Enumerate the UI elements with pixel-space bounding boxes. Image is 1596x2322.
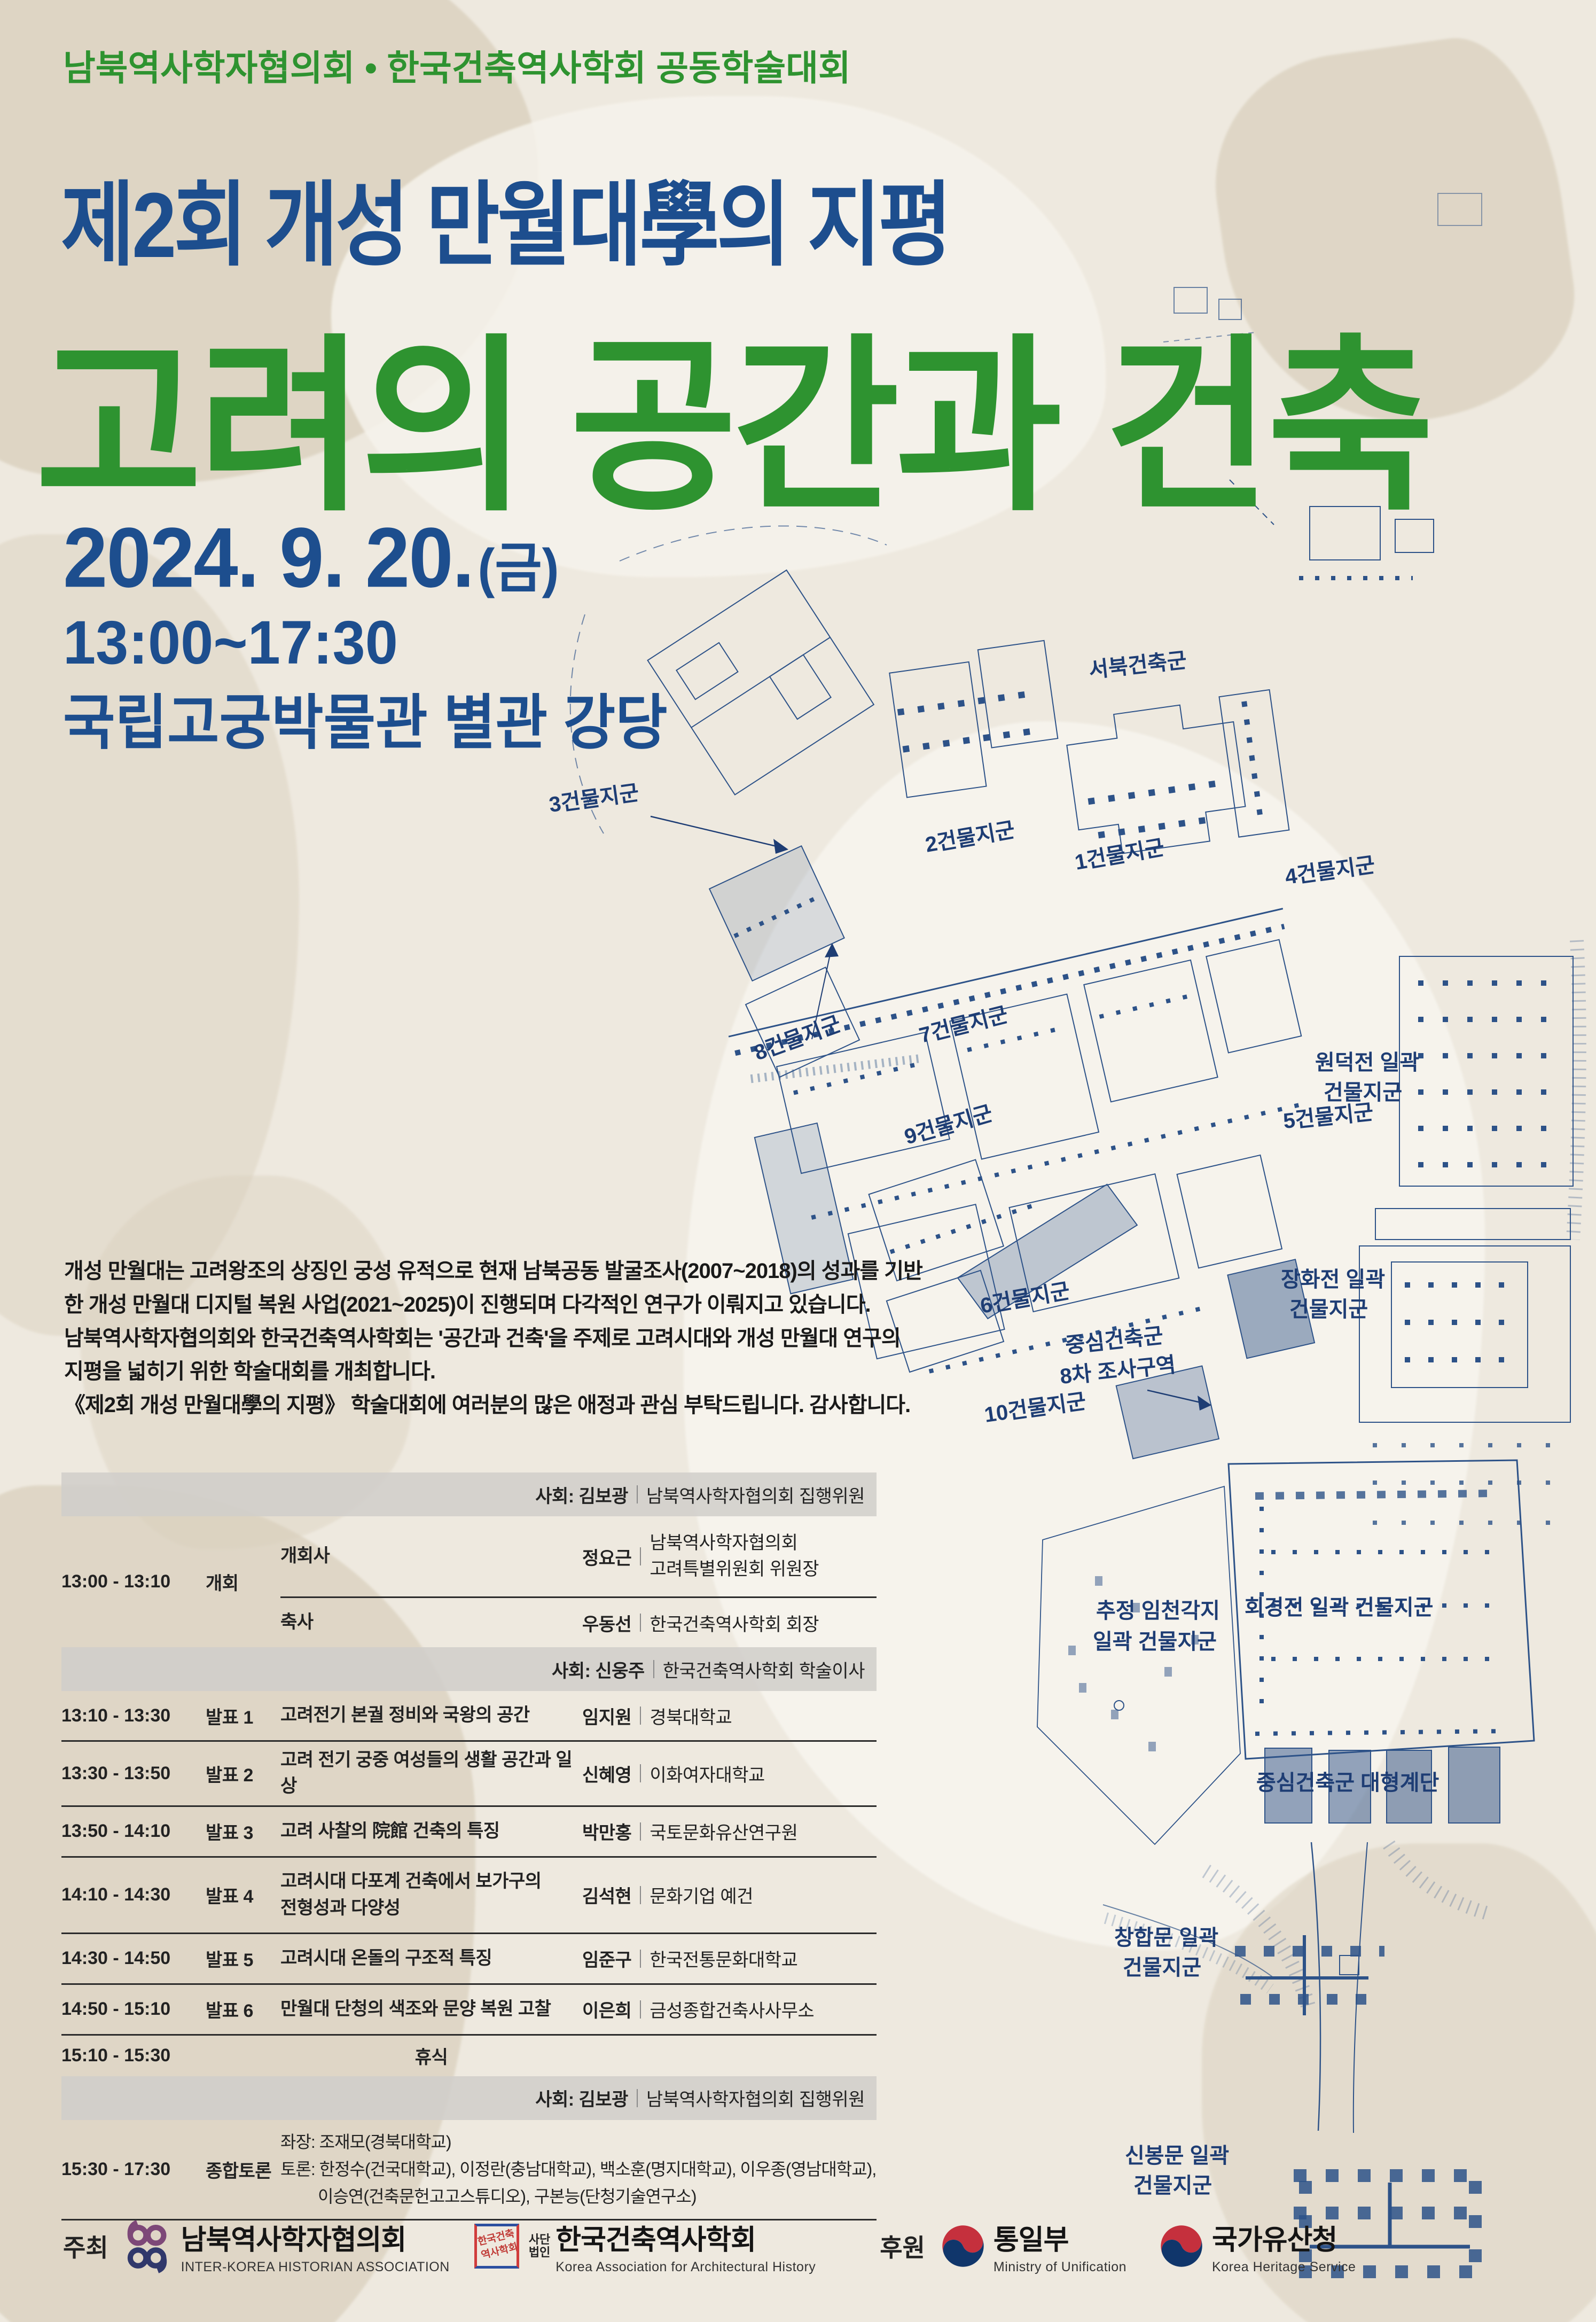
map-label: 일곽 건물지군 bbox=[1093, 1630, 1217, 1654]
presenter-name: 임준구 bbox=[582, 1945, 631, 1972]
time-cell: 13:00 - 13:10 bbox=[61, 1571, 184, 1592]
sponsor1-text: 통일부 Ministry of Unification bbox=[993, 2217, 1126, 2275]
map-east-group bbox=[1359, 940, 1579, 1523]
map-label: 건물지군 bbox=[1289, 1298, 1368, 1321]
presenter-name: 우동선 bbox=[582, 1610, 631, 1636]
event-date-main: 2024. 9. 20. bbox=[63, 509, 473, 606]
discussion-row: 15:30 - 17:30 종합토론 좌장: 조재모(경북대학교) 토론: 한정… bbox=[61, 2120, 877, 2219]
time-cell: 15:10 - 15:30 bbox=[61, 2045, 184, 2066]
discussion-line: 이승연(건축문헌고고스튜디오), 구본능(단청기술연구소) bbox=[280, 2183, 877, 2210]
time-cell: 14:10 - 14:30 bbox=[61, 1884, 184, 1905]
korea-heritage-service-taegeuk-icon bbox=[1159, 2223, 1204, 2269]
time-cell: 13:30 - 13:50 bbox=[61, 1763, 184, 1784]
moderator-affiliation: 남북역사학자협의회 집행위원 bbox=[646, 1482, 865, 1508]
presenter-affiliation: 금성종합건축사사무소 bbox=[650, 1996, 814, 2022]
moderator-name: 사회: 김보광 bbox=[535, 1482, 628, 1508]
map-imcheongak bbox=[1037, 1486, 1240, 1844]
map-south-walls bbox=[1103, 1842, 1489, 2133]
host1-english-name: INTER-KOREA HISTORIAN ASSOCIATION bbox=[181, 2259, 450, 2275]
separator-bar bbox=[637, 1485, 638, 1503]
presenter-affiliation: 한국전통문화대학교 bbox=[650, 1945, 797, 1972]
intro-paragraph: 개성 만월대는 고려왕조의 상징인 궁성 유적으로 현재 남북공동 발굴조사(2… bbox=[64, 1254, 951, 1422]
map-label: 중심건축군 bbox=[1064, 1324, 1164, 1358]
moderator-name: 사회: 김보광 bbox=[535, 2085, 628, 2111]
presenter-affiliation: 이화여자대학교 bbox=[650, 1760, 764, 1787]
presenter-cell: 김석현 문화기업 예건 bbox=[582, 1882, 877, 1908]
event-venue: 국립고궁박물관 별관 강당 bbox=[63, 674, 668, 761]
map-compound bbox=[648, 570, 874, 794]
schedule-row: 14:10 - 14:30 발표 4 고려시대 다포계 건축에서 보가구의 전형… bbox=[61, 1858, 877, 1933]
prefix-line: 법인 bbox=[529, 2246, 550, 2259]
category-cell: 발표 4 bbox=[184, 1882, 280, 1908]
intro-line: 남북역사학자협의회와 한국건축역사학회는 '공간과 건축'을 주제로 고려시대와… bbox=[64, 1322, 951, 1355]
role-cell: 축사 bbox=[280, 1598, 582, 1647]
time-cell: 14:30 - 14:50 bbox=[61, 1948, 184, 1969]
map-label: 3건물지군 bbox=[547, 781, 640, 817]
poster: 서북건축군 3건물지군 2건물지군 1건물지군 4건물지군 8건물지군 7건물지… bbox=[0, 0, 1596, 2322]
separator-bar bbox=[640, 1764, 641, 1782]
map-label: 7건물지군 bbox=[917, 1003, 1011, 1048]
category-cell: 발표 5 bbox=[184, 1945, 280, 1972]
presenter-cell: 임준구 한국전통문화대학교 bbox=[582, 1945, 877, 1972]
event-date-weekday: (금) bbox=[478, 524, 559, 603]
map-label: 1건물지군 bbox=[1073, 836, 1167, 875]
affiliation-line: 고려특별위원회 위원장 bbox=[650, 1556, 819, 1583]
map-label: 원덕전 일곽 bbox=[1315, 1051, 1419, 1074]
presenter-name: 정요근 bbox=[582, 1544, 631, 1570]
title-line: 고려시대 다포계 건축에서 보가구의 bbox=[280, 1868, 582, 1895]
schedule-row: 13:30 - 13:50 발표 2 고려 전기 궁중 여성들의 생활 공간과 … bbox=[61, 1742, 877, 1805]
affiliation-line: 남북역사학자협의회 bbox=[650, 1530, 819, 1556]
map-hoegyeongjeon bbox=[1229, 1460, 1534, 1823]
footer: 주최 남북역사학자협의회 INTER-KOREA HISTORIAN ASSOC… bbox=[63, 2216, 1356, 2276]
separator-bar bbox=[640, 1886, 641, 1904]
map-label: 회경전 일곽 건물지군 bbox=[1245, 1596, 1433, 1619]
title-cell: 고려전기 본궐 정비와 국왕의 공간 bbox=[280, 1702, 582, 1728]
subtitle: 제2회 개성 만월대學의 지평 bbox=[61, 151, 949, 284]
host2-name: 한국건축역사학회 bbox=[556, 2217, 816, 2257]
map-label: 창합문 일곽 bbox=[1114, 1926, 1218, 1950]
presenter-cell: 이은희 금성종합건축사사무소 bbox=[582, 1996, 877, 2022]
sponsor-label: 후원 bbox=[880, 2229, 925, 2264]
category-cell: 종합토론 bbox=[184, 2156, 280, 2183]
sponsor2-name: 국가유산청 bbox=[1212, 2217, 1356, 2257]
time-cell: 13:10 - 13:30 bbox=[61, 1705, 184, 1726]
presenter-cell: 우동선 한국건축역사학회 회장 bbox=[582, 1598, 877, 1647]
intro-line: 지평을 넓히기 위한 학술대회를 개최합니다. bbox=[64, 1355, 951, 1389]
presenter-affiliation: 남북역사학자협의회 고려특별위원회 위원장 bbox=[650, 1530, 819, 1583]
category-cell: 개회 bbox=[184, 1569, 280, 1595]
presenter-affiliation: 문화기업 예건 bbox=[650, 1882, 753, 1908]
host-label: 주최 bbox=[63, 2229, 108, 2264]
intro-line: 한 개성 만월대 디지털 복원 사업(2021~2025)이 진행되며 다각적인… bbox=[64, 1288, 951, 1322]
break-row: 15:10 - 15:30 휴식 bbox=[61, 2036, 877, 2076]
title-cell: 만월대 단청의 색조와 문양 복원 고찰 bbox=[280, 1996, 582, 2022]
map-label: 장화전 일곽 bbox=[1281, 1268, 1385, 1291]
category-cell: 발표 1 bbox=[184, 1703, 280, 1729]
presenter-name: 이은희 bbox=[582, 1996, 631, 2022]
moderator-name: 사회: 신웅주 bbox=[552, 1656, 645, 1682]
title-cell: 고려 사찰의 院館 건축의 특징 bbox=[280, 1818, 582, 1844]
separator-bar bbox=[640, 1614, 641, 1632]
category-cell: 발표 2 bbox=[184, 1760, 280, 1787]
presenter-cell: 정요근 남북역사학자협의회 고려특별위원회 위원장 bbox=[582, 1516, 877, 1596]
time-cell: 13:50 - 14:10 bbox=[61, 1821, 184, 1842]
presenter-name: 신혜영 bbox=[582, 1760, 631, 1787]
sponsor2-english-name: Korea Heritage Service bbox=[1212, 2259, 1356, 2275]
role-cell: 개회사 bbox=[280, 1516, 582, 1596]
presenter-name: 박만홍 bbox=[582, 1818, 631, 1844]
host2-text: 한국건축역사학회 Korea Association for Architect… bbox=[556, 2217, 816, 2275]
title-cell: 고려 전기 궁중 여성들의 생활 공간과 일상 bbox=[280, 1747, 582, 1800]
moderator-band: 사회: 김보광 남북역사학자협의회 집행위원 bbox=[61, 1472, 877, 1516]
map-label: 중심건축군 대형계단 bbox=[1256, 1771, 1439, 1795]
separator-bar bbox=[640, 1950, 641, 1968]
title-cell: 고려시대 다포계 건축에서 보가구의 전형성과 다양성 bbox=[280, 1868, 582, 1921]
title-cell: 고려시대 온돌의 구조적 특징 bbox=[280, 1945, 582, 1972]
time-cell: 15:30 - 17:30 bbox=[61, 2159, 184, 2180]
map-label: 4건물지군 bbox=[1284, 853, 1376, 889]
map-label: 건물지군 bbox=[1133, 2174, 1212, 2198]
schedule-row-opening: 13:00 - 13:10 개회 개회사 정요근 남북역사학자협의회 고려특별위… bbox=[61, 1516, 877, 1647]
category-cell: 발표 6 bbox=[184, 1996, 280, 2022]
discussion-line: 토론: 한정수(건국대학교), 이정란(충남대학교), 백소훈(명지대학교), … bbox=[280, 2156, 877, 2183]
sponsor2-text: 국가유산청 Korea Heritage Service bbox=[1212, 2217, 1356, 2275]
host2-english-name: Korea Association for Architectural Hist… bbox=[556, 2259, 816, 2275]
discussion-content: 좌장: 조재모(경북대학교) 토론: 한정수(건국대학교), 이정란(충남대학교… bbox=[280, 2120, 877, 2219]
presenter-name: 김석현 bbox=[582, 1882, 631, 1908]
map-label: 서북건축군 bbox=[1088, 649, 1188, 682]
host1-text: 남북역사학자협의회 INTER-KOREA HISTORIAN ASSOCIAT… bbox=[181, 2217, 450, 2275]
moderator-band: 사회: 김보광 남북역사학자협의회 집행위원 bbox=[61, 2076, 877, 2120]
presenter-name: 임지원 bbox=[582, 1703, 631, 1729]
intro-line: 《제2회 개성 만월대學의 지평》 학술대회에 여러분의 많은 애정과 관심 부… bbox=[64, 1389, 951, 1422]
presenter-affiliation: 국토문화유산연구원 bbox=[650, 1818, 797, 1844]
schedule-row: 13:50 - 14:10 발표 3 고려 사찰의 院館 건축의 특징 박만홍 … bbox=[61, 1807, 877, 1856]
presenter-cell: 임지원 경북대학교 bbox=[582, 1703, 877, 1729]
separator-bar bbox=[637, 2089, 638, 2107]
discussion-line: 좌장: 조재모(경북대학교) bbox=[280, 2129, 877, 2156]
page-title: 고려의 공간과 건축 bbox=[35, 274, 1430, 547]
map-label: 신봉문 일곽 bbox=[1125, 2144, 1229, 2168]
map-label: 2건물지군 bbox=[924, 818, 1017, 857]
schedule-table: 사회: 김보광 남북역사학자협의회 집행위원 13:00 - 13:10 개회 … bbox=[61, 1472, 877, 2220]
sponsor1-english-name: Ministry of Unification bbox=[993, 2259, 1126, 2275]
supertitle: 남북역사학자협의회 • 한국건축역사학회 공동학술대회 bbox=[63, 40, 851, 91]
map-label: 건물지군 bbox=[1123, 1956, 1201, 1980]
event-date: 2024. 9. 20. (금) bbox=[63, 509, 559, 606]
intro-line: 개성 만월대는 고려왕조의 상징인 궁성 유적으로 현재 남북공동 발굴조사(2… bbox=[64, 1254, 951, 1288]
schedule-row: 14:50 - 15:10 발표 6 만월대 단청의 색조와 문양 복원 고찰 … bbox=[61, 1985, 877, 2034]
presenter-affiliation: 한국건축역사학회 회장 bbox=[650, 1610, 819, 1636]
host1-name: 남북역사학자협의회 bbox=[181, 2217, 450, 2257]
sponsor1-name: 통일부 bbox=[993, 2217, 1126, 2257]
moderator-affiliation: 남북역사학자협의회 집행위원 bbox=[646, 2085, 865, 2111]
category-cell: 발표 3 bbox=[184, 1818, 280, 1844]
map-west-group bbox=[671, 838, 921, 1127]
inter-korea-historian-association-logo bbox=[123, 2216, 173, 2276]
presenter-cell: 신혜영 이화여자대학교 bbox=[582, 1760, 877, 1787]
prefix-line: 사단 bbox=[529, 2233, 550, 2246]
ministry-of-unification-taegeuk-icon bbox=[940, 2223, 986, 2269]
title-line: 전형성과 다양성 bbox=[280, 1895, 582, 1921]
separator-bar bbox=[640, 1707, 641, 1725]
moderator-affiliation: 한국건축역사학회 학술이사 bbox=[663, 1656, 865, 1682]
presenter-cell: 박만홍 국토문화유산연구원 bbox=[582, 1818, 877, 1844]
map-label: 10건물지군 bbox=[983, 1390, 1088, 1427]
host2-prefix: 사단 법인 bbox=[529, 2233, 550, 2259]
separator-bar bbox=[640, 2000, 641, 2019]
schedule-row: 13:10 - 13:30 발표 1 고려전기 본궐 정비와 국왕의 공간 임지… bbox=[61, 1691, 877, 1740]
separator-bar bbox=[653, 1660, 654, 1678]
map-label: 추정 임천각지 bbox=[1096, 1599, 1220, 1623]
map-label: 9건물지군 bbox=[902, 1102, 995, 1149]
event-time: 13:00~17:30 bbox=[63, 607, 398, 678]
seal-text: 한국건축역사학회 bbox=[476, 2226, 519, 2263]
separator-bar bbox=[640, 1822, 641, 1841]
schedule-row: 14:30 - 14:50 발표 5 고려시대 온돌의 구조적 특징 임준구 한… bbox=[61, 1934, 877, 1983]
break-label: 휴식 bbox=[280, 2043, 582, 2069]
presenter-affiliation: 경북대학교 bbox=[650, 1703, 732, 1729]
separator-bar bbox=[640, 1547, 641, 1565]
moderator-band: 사회: 신웅주 한국건축역사학회 학술이사 bbox=[61, 1647, 877, 1691]
architectural-history-seal-icon: 한국건축역사학회 bbox=[474, 2224, 519, 2269]
time-cell: 14:50 - 15:10 bbox=[61, 1999, 184, 2020]
